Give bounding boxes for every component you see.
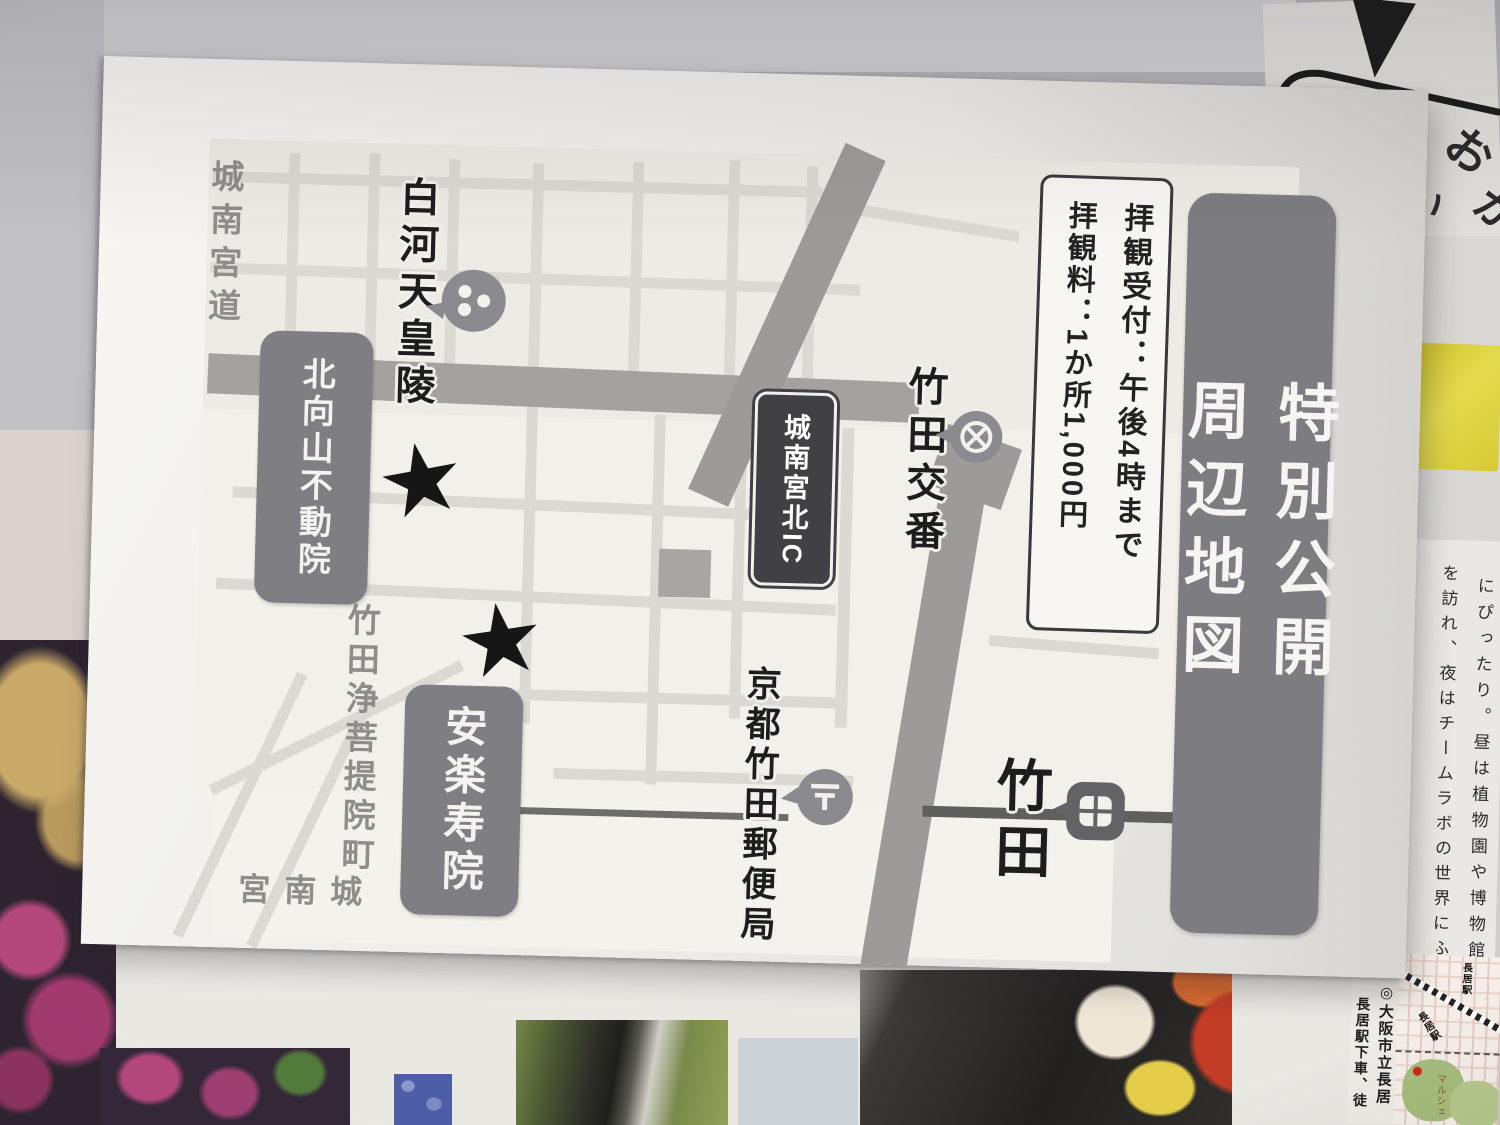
station-marker [1066,781,1125,840]
corner-map-note: マルシェ [1431,1073,1448,1117]
corner-map-caption: 長居駅下車、徒 [1350,996,1374,1109]
flyer-map-sheet: 城南宮道 竹田浄菩提院町 城南宮 白河天皇陵 竹田交番 京都竹田郵便局 竹田 [81,56,1429,978]
park-area [1449,1080,1500,1125]
map-label-jonangu: 城南宮 [228,872,368,952]
admission-fee-text: 拝観料：1か所1,000円 [1049,200,1102,532]
star-marker-icon: ★ [369,423,473,535]
map-label-box-ic: 城南宮北IC [750,391,837,587]
map-label-box-anrakujuin: 安楽寿院 [400,684,524,917]
background-paper-left [0,430,100,670]
post-office-symbol-icon [807,782,842,813]
marker-tail [1052,801,1068,817]
koban-symbol-icon [958,419,995,456]
fudoin-label: 北向山不動院 [287,356,341,579]
station-label: 長居駅 [1458,962,1474,996]
blue-pattern-photo [394,1074,452,1125]
corner-map-caption: ◎大阪市立長居 [1372,983,1397,1106]
corner-mini-map: ◎大阪市立長居 長居駅下車、徒 長居駅 長居駅 マルシェ [1347,952,1500,1125]
visiting-info-box: 拝観受付：午後4時まで 拝観料：1か所1,000円 [1026,174,1174,634]
subway-line-icon [1396,1050,1500,1056]
photo-scene: お が い にぴったり。昼は植物園や博物館 を訪れ、夜はチームラボの世界にふ ◎… [0,0,1500,1125]
page-title: 特別公開 周辺地図 [1158,377,1348,752]
map-label-box-fudoin: 北向山不動院 [254,330,374,605]
reception-hours-text: 拝観受付：午後4時まで [1102,202,1158,564]
corner-map-graphic: 長居駅 長居駅 マルシェ [1393,954,1500,1125]
station-symbol-icon [1076,793,1115,830]
garden-path-photo [516,1020,728,1125]
map-label-shirakawa-tomb: 白河天皇陵 [382,175,446,411]
map-label-post-office: 京都竹田郵便局 [729,665,787,946]
food-photo [860,970,1232,1125]
background-paper-top-left [0,0,104,430]
flower-photo [100,1048,350,1125]
map-label-takeda-koban: 竹田交番 [891,365,954,558]
magazine-text-column: にぴったり。昼は植物園や博物館 [1462,577,1497,968]
magazine-text-column: を訪れ、夜はチームラボの世界にふ [1426,564,1461,965]
map-street-label-jobodaiincho: 竹田浄菩提院町 [331,602,386,876]
anrakujuin-label: 安楽寿院 [429,704,495,898]
yellow-sticker [1410,343,1500,472]
ic-label: 城南宮北IC [772,412,815,566]
map-road-label-jonangu-michi: 城南宮道 [197,159,249,332]
star-marker-icon: ★ [450,585,551,695]
pale-photo [738,1038,858,1125]
title-banner: 特別公開 周辺地図 [1169,192,1336,936]
imperial-tomb-symbol-icon [451,280,496,321]
station-label: 長居駅 [1413,1010,1444,1046]
railway-line-icon [1396,968,1500,1039]
building-block [658,549,711,598]
map-label-takeda-station: 竹田 [978,755,1062,889]
marker-tail [935,426,953,444]
marker-tail [780,787,801,808]
